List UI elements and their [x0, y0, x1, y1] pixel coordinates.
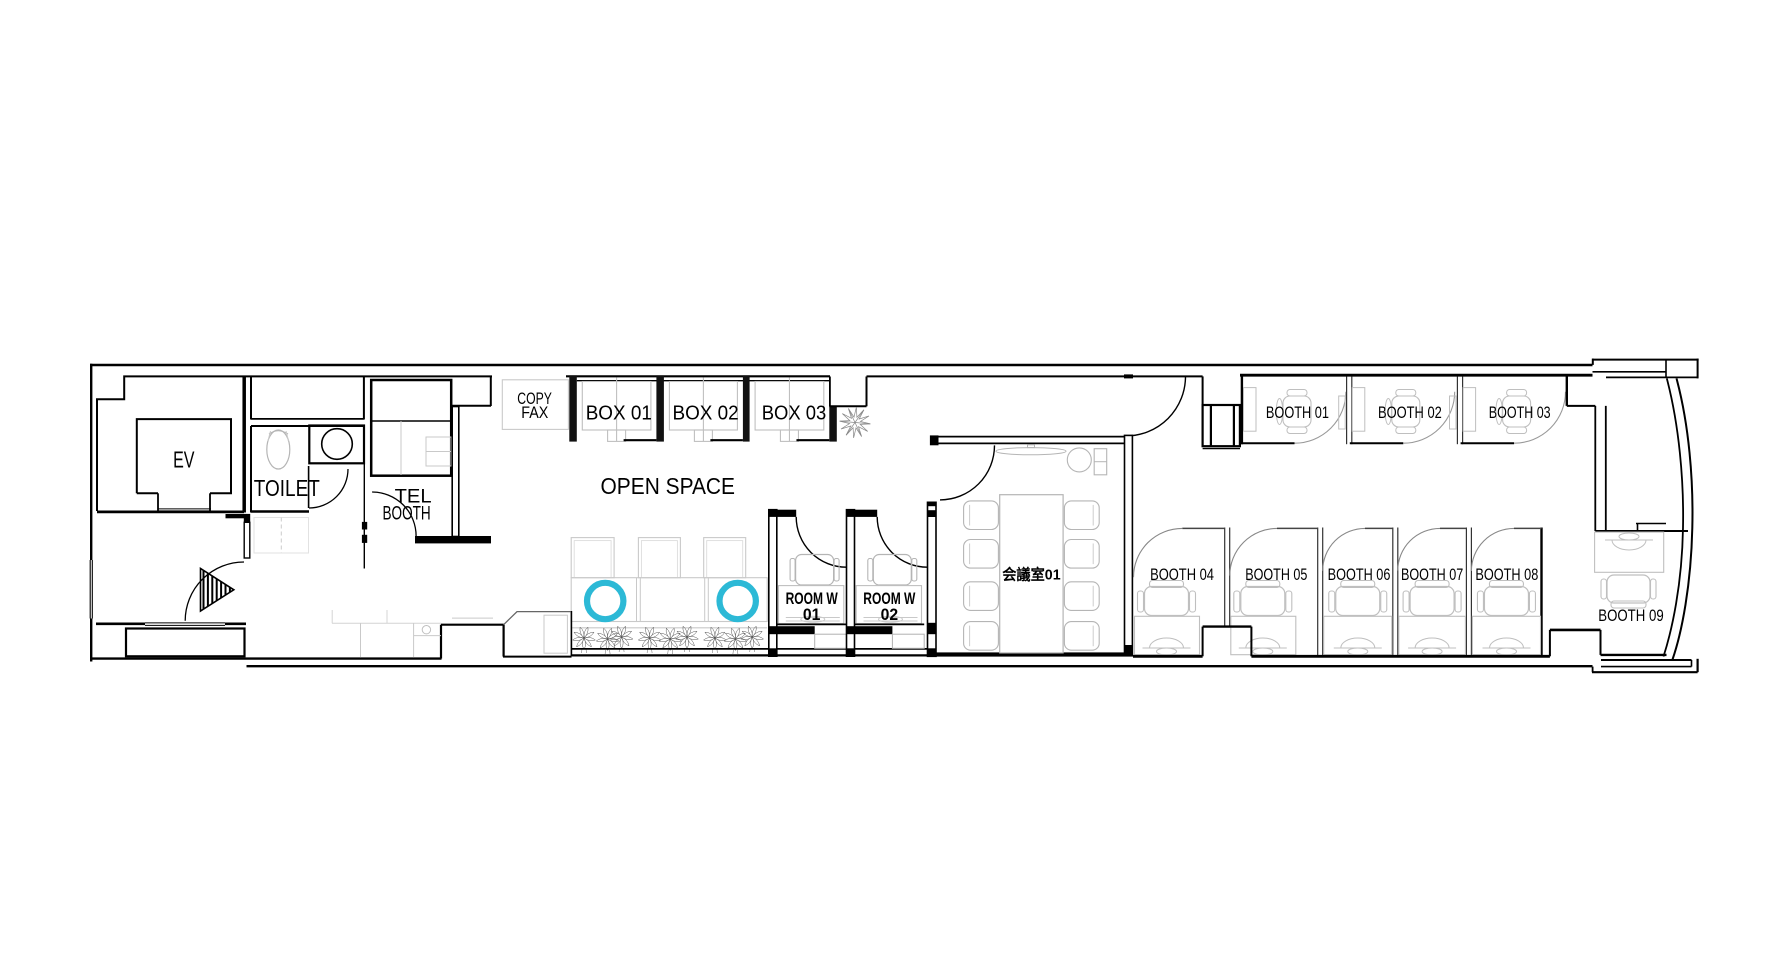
- svg-text:01: 01: [803, 605, 821, 624]
- svg-text:BOOTH 09: BOOTH 09: [1598, 606, 1663, 625]
- svg-text:会議室01: 会議室01: [1002, 565, 1060, 583]
- svg-text:BOOTH 01: BOOTH 01: [1266, 404, 1329, 422]
- svg-text:BOOTH 07: BOOTH 07: [1401, 565, 1463, 584]
- svg-text:BOX 01: BOX 01: [586, 402, 652, 425]
- svg-text:OPEN SPACE: OPEN SPACE: [601, 473, 736, 499]
- svg-text:BOOTH 08: BOOTH 08: [1475, 565, 1538, 584]
- svg-text:BOX 02: BOX 02: [673, 402, 739, 425]
- svg-text:BOOTH 02: BOOTH 02: [1378, 404, 1442, 422]
- svg-text:TOILET: TOILET: [254, 475, 320, 501]
- svg-text:02: 02: [881, 605, 899, 624]
- svg-text:BOOTH 04: BOOTH 04: [1150, 565, 1214, 584]
- svg-text:BOX 03: BOX 03: [762, 402, 827, 425]
- svg-text:BOOTH: BOOTH: [383, 504, 431, 525]
- svg-text:EV: EV: [173, 447, 195, 473]
- svg-text:FAX: FAX: [521, 404, 548, 422]
- svg-text:BOOTH 05: BOOTH 05: [1245, 565, 1307, 584]
- svg-text:BOOTH 06: BOOTH 06: [1328, 565, 1391, 584]
- svg-text:BOOTH 03: BOOTH 03: [1489, 404, 1551, 422]
